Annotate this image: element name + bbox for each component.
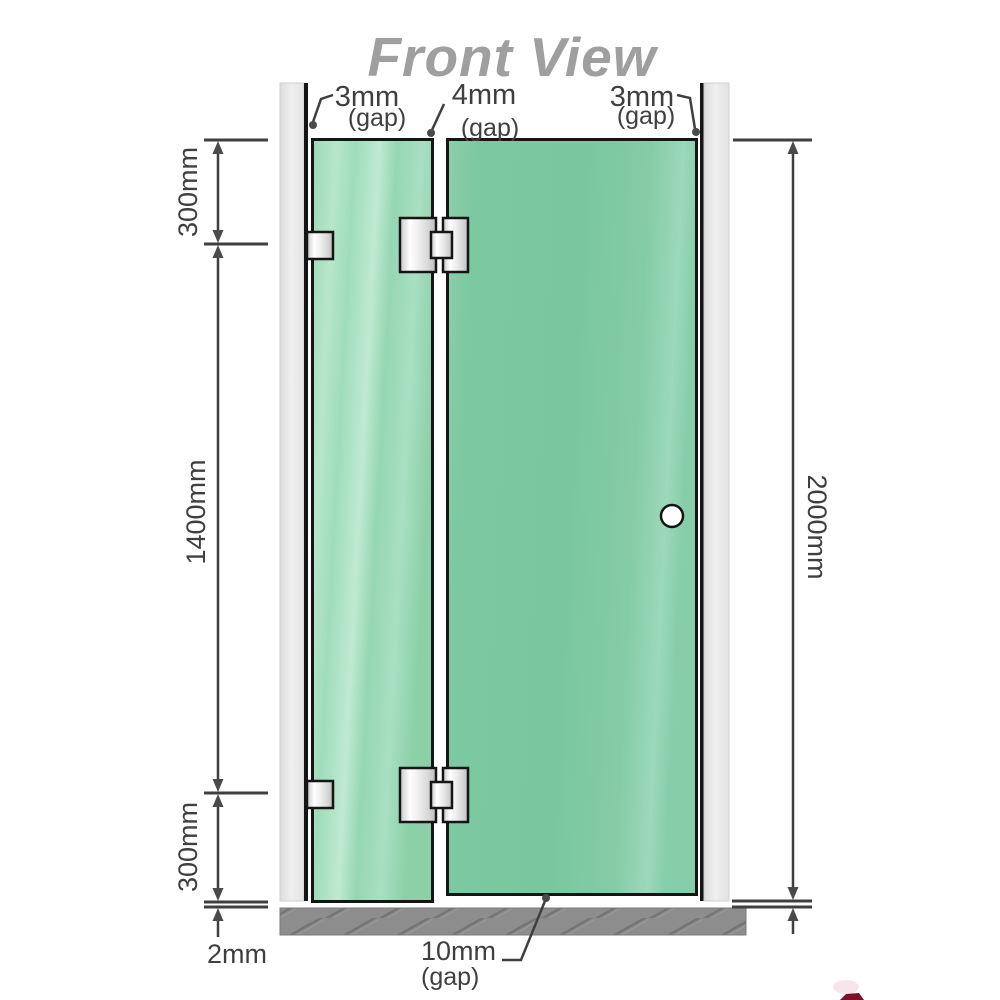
arrow-up-icon (213, 245, 224, 258)
gap-10mm-label: 10mm (421, 936, 496, 966)
floor-base (280, 908, 746, 935)
bottom-hinge-knuckle (431, 782, 452, 808)
gap-4mm-label: 4mm (452, 79, 516, 111)
gap-10mm-sub: (gap) (421, 963, 479, 991)
logo-mark-icon (840, 993, 864, 1000)
leader-dot-icon (309, 121, 317, 129)
dim-300mm-bottom-label: 300mm (173, 802, 203, 892)
leader-line-right (677, 95, 695, 129)
arrow-down-icon (213, 779, 224, 792)
leader-dot-icon (692, 128, 700, 136)
top-hinge-knuckle (431, 232, 452, 258)
right-wall-edge-line (700, 83, 704, 901)
arrow-down-icon (213, 888, 224, 901)
arrow-up-icon (213, 141, 224, 154)
gap-3mm-left-sub: (gap) (348, 104, 406, 132)
diagram-canvas: Front View 3 (0, 0, 1000, 1000)
arrow-down-icon (788, 887, 799, 900)
dim-2mm-label: 2mm (207, 939, 267, 969)
leader-line-left (313, 95, 333, 122)
gap-callouts-top: 3mm (gap) 4mm (gap) 3mm (gap) (309, 79, 700, 142)
gap-4mm-sub: (gap) (461, 114, 519, 142)
bottom-hinge (400, 768, 468, 822)
bottom-wall-bracket (307, 781, 333, 808)
dim-2000mm-label: 2000mm (802, 474, 832, 579)
leader-dot-icon (542, 894, 550, 902)
gap-3mm-right-sub: (gap) (617, 102, 675, 130)
arrow-up-icon (213, 908, 224, 921)
top-hinge (400, 218, 468, 272)
right-dimension-total-height: 2000mm (732, 140, 832, 934)
dim-1400mm-label: 1400mm (181, 459, 211, 564)
arrow-up-icon (213, 794, 224, 807)
left-dimension-chain: 300mm 1400mm 300mm 2mm (173, 140, 268, 969)
arrow-up-icon (788, 908, 799, 921)
glass-door-panel (448, 140, 697, 895)
dim-300mm-top-label: 300mm (173, 147, 203, 237)
front-view-diagram: Front View 3 (0, 0, 1000, 1000)
leader-line-mid (432, 104, 444, 130)
leader-dot-icon (427, 129, 435, 137)
arrow-up-icon (788, 141, 799, 154)
right-wall (704, 83, 729, 901)
door-knob (661, 505, 683, 527)
arrow-down-icon (213, 230, 224, 243)
left-wall (280, 83, 304, 901)
left-wall-edge-line (304, 83, 308, 901)
logo-smudge (833, 980, 859, 994)
top-wall-bracket (307, 232, 333, 259)
